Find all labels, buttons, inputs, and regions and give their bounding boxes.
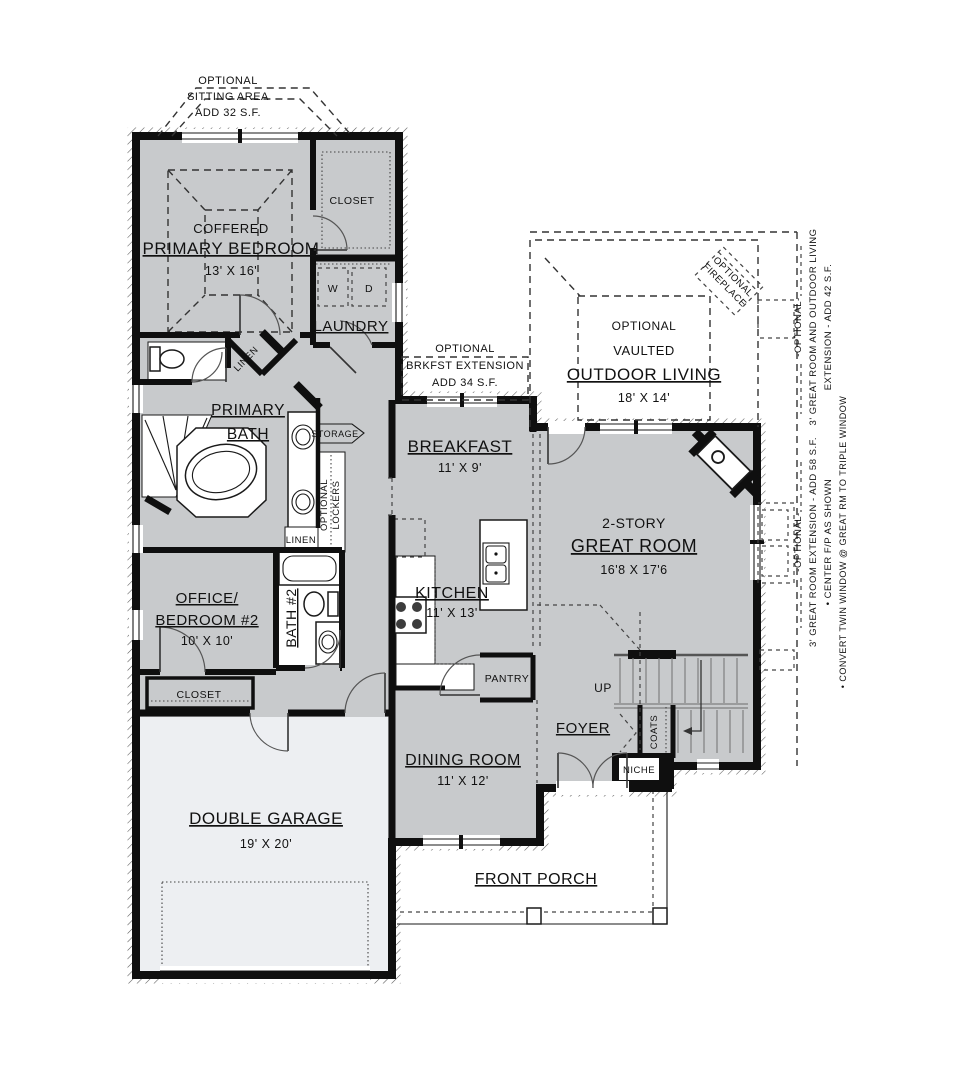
primary-bedroom-label: PRIMARY BEDROOM [143,239,320,258]
primary-closet-label: CLOSET [329,195,374,207]
toilet2-icon [304,592,324,616]
optional-window-box [758,300,794,338]
outdoor-living-sub1-label: OPTIONAL [612,319,677,333]
dryer-label: D [365,283,373,295]
linen-hall-label: LINEN [286,535,316,546]
breakfast-extension-label-3: ADD 34 S.F. [432,377,498,389]
great-room-dims: 16'8 X 17'6 [600,563,667,577]
washer-label: W [328,283,338,295]
gr-ext-line2: • CENTER F/P AS SHOWN [823,479,834,606]
office-closet-label: CLOSET [176,689,221,701]
toilet-icon [150,347,160,371]
garage-label: DOUBLE GARAGE [189,809,343,828]
hall-breakfast-opening [387,478,397,515]
primary-bath-label-1: PRIMARY [211,402,285,419]
bedroom-window [182,129,298,143]
outdoor-living-sub2-label: VAULTED [613,343,675,358]
breakfast-dims: 11' X 9' [438,461,482,475]
great-room-sub-label: 2-STORY [602,515,666,531]
up-label: UP [594,681,612,695]
kitchen-label: KITCHEN [415,585,489,602]
lockers-label-2: LOCKERS [331,481,342,530]
garage-dims: 19' X 20' [240,837,292,851]
gr-ext-title: -OPTIONAL- [793,512,804,571]
sitting-area-label-1: OPTIONAL [198,75,258,87]
office-label-2: BEDROOM #2 [155,612,258,629]
primary-bedroom-sub-label: COFFERED [193,221,269,236]
breakfast-extension-label-1: OPTIONAL [435,343,495,355]
gr-outdoor-ext-line1: 3' GREAT ROOM AND OUTDOOR LIVING [808,229,819,426]
stove-icon [392,597,426,633]
bath-window [129,385,143,413]
breakfast-extension-label-2: BRKFST EXTENSION [406,360,524,372]
coats-label: COATS [649,715,660,750]
gr-ext-line1: 3' GREAT ROOM EXTENSION - ADD 58 S.F. [808,437,819,647]
niche-label: NICHE [623,765,655,776]
outdoor-living-dims: 18' X 14' [618,391,670,405]
stair-window [697,759,719,773]
dining-window [423,835,500,849]
great-room-window [600,420,672,434]
porch-post [527,908,541,924]
porch-post [653,908,667,924]
office-window [129,610,143,640]
bath-window-2 [129,525,143,553]
breakfast-label: BREAKFAST [408,437,513,456]
dining-dims: 11' X 12' [437,774,488,788]
floor-plan-page: OPTIONAL SITTING AREA ADD 32 S.F. COFFER… [0,0,980,1060]
gr-outdoor-ext-title: -OPTIONAL- [793,297,804,356]
bath2-label: BATH #2 [283,588,299,647]
gr-outdoor-ext-line2: EXTENSION - ADD 42 S.F. [823,264,834,391]
primary-bath-label-2: BATH [227,426,269,443]
office-label-1: OFFICE/ [176,590,239,607]
outdoor-living-label: OUTDOOR LIVING [567,365,721,384]
pantry-label: PANTRY [485,673,530,685]
foyer-label: FOYER [556,720,610,737]
sitting-area-label-2: SITTING AREA [187,91,269,103]
optional-fireplace-outline [695,247,763,315]
kitchen-dims: 11' X 13' [426,606,477,620]
front-porch-label: FRONT PORCH [475,871,598,888]
storage-label: STORAGE [311,429,358,439]
office-dims: 10' X 10' [181,634,233,648]
lockers-label-1: OPTIONAL [319,479,330,531]
gr-ext-line3: • CONVERT TWIN WINDOW @ GREAT RM TO TRIP… [838,396,848,688]
sitting-area-label-3: ADD 32 S.F. [195,107,261,119]
dining-label: DINING ROOM [405,752,521,769]
floor-plan-drawing: OPTIONAL SITTING AREA ADD 32 S.F. COFFER… [0,0,980,1060]
laundry-window [392,283,406,322]
great-room-label: GREAT ROOM [571,536,697,556]
primary-bedroom-dims: 13' X 16' [205,264,257,278]
laundry-label: LAUNDRY [314,318,389,335]
